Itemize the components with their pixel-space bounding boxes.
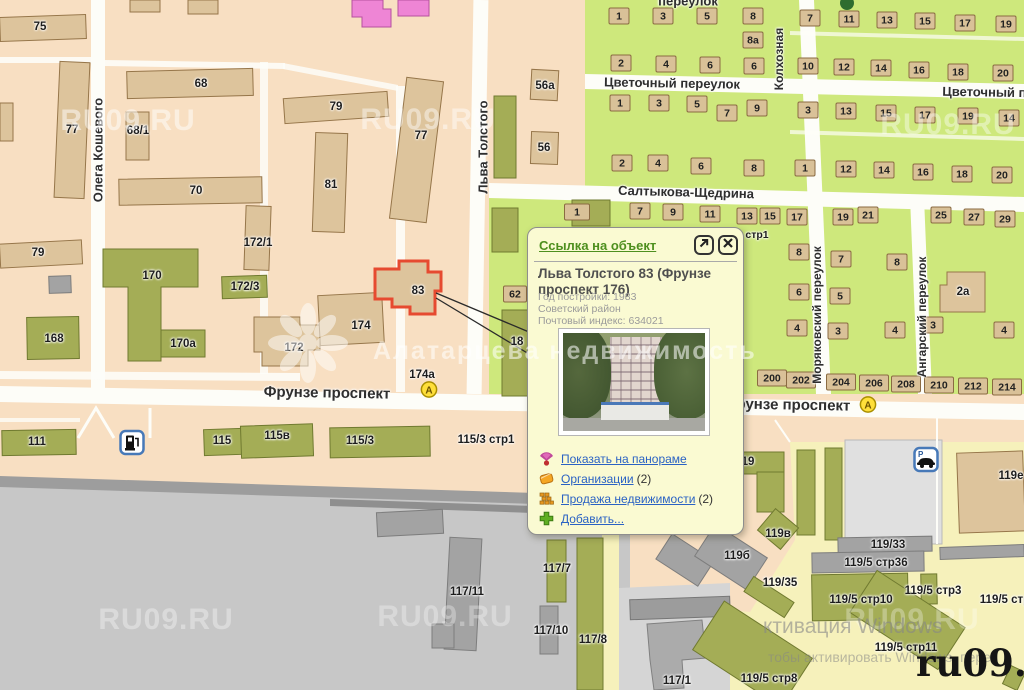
building-square-6[interactable]: 6 [789, 284, 810, 301]
popup-action-link[interactable]: Добавить... [561, 512, 624, 526]
street-label: Цветочный переулок [604, 74, 740, 91]
building-label: 115в [264, 430, 290, 442]
map-page: { "popup": { "link_label": "Ссылка на об… [0, 0, 1024, 690]
building-square-204[interactable]: 204 [826, 374, 856, 391]
building-square-1[interactable]: 1 [564, 204, 590, 221]
street-label: переулок [658, 0, 718, 9]
building-square-4[interactable]: 4 [656, 56, 677, 73]
fuel-station-icon[interactable] [119, 430, 145, 461]
building-square-7[interactable]: 7 [717, 105, 738, 122]
street-label: Салтыкова-Щедрина [618, 183, 754, 202]
bus-stop-icon[interactable]: А [420, 381, 438, 404]
building-square-29[interactable]: 29 [995, 211, 1016, 228]
building-square-18[interactable]: 18 [952, 166, 973, 183]
site-watermark: RU09.RU [377, 600, 512, 634]
building-label: 115/3 стр1 [458, 434, 515, 446]
site-watermark: RU09.RU [360, 103, 495, 137]
building-label: 115/3 [346, 435, 374, 447]
object-link[interactable]: Ссылка на объект [539, 238, 656, 253]
building-square-18[interactable]: 18 [948, 64, 969, 81]
building-square-17[interactable]: 17 [787, 209, 808, 226]
popup-actions: Показать на панорамеОрганизации(2)Продаж… [538, 449, 713, 529]
building-square-8[interactable]: 8 [887, 254, 908, 271]
building-label: 56 [538, 142, 551, 154]
building-square-7[interactable]: 7 [800, 10, 821, 27]
street-label: Моряковский переулок [810, 246, 824, 384]
popup-action-organizations[interactable]: Организации(2) [538, 469, 713, 488]
popup-action-add[interactable]: Добавить... [538, 509, 713, 528]
building-label: 172/3 [231, 281, 260, 293]
object-build-year: Год постройки: 1983 [538, 291, 636, 303]
photo-kiosk [601, 405, 669, 421]
building-label: 79 [32, 247, 45, 259]
svg-text:P: P [918, 450, 924, 459]
building-square-7[interactable]: 7 [831, 251, 852, 268]
building-square-21[interactable]: 21 [858, 207, 879, 224]
building-square-13[interactable]: 13 [877, 12, 898, 29]
popup-action-count: (2) [698, 492, 713, 506]
building-square-19[interactable]: 19 [996, 16, 1017, 33]
building-square-4[interactable]: 4 [787, 320, 808, 337]
building-square-8[interactable]: 8 [743, 8, 764, 25]
building-square-9[interactable]: 9 [663, 204, 684, 221]
building-square-27[interactable]: 27 [964, 209, 985, 226]
building-label: 174 [351, 320, 370, 332]
building-label: стр1 [745, 229, 768, 241]
popup-goto-button[interactable] [694, 235, 714, 255]
building-square-15[interactable]: 15 [760, 208, 781, 225]
building-square-9[interactable]: 9 [747, 100, 768, 117]
building-square-10[interactable]: 10 [798, 58, 819, 75]
popup-action-count: (2) [637, 472, 652, 486]
building-label: 119б [724, 550, 750, 562]
building-square-208[interactable]: 208 [891, 376, 921, 393]
building-square-2[interactable]: 2 [612, 155, 633, 172]
building-square-1[interactable]: 1 [610, 95, 631, 112]
site-watermark: RU09.RU [60, 104, 195, 138]
building-square-15[interactable]: 15 [915, 13, 936, 30]
bus-stop-icon[interactable]: А [859, 396, 877, 419]
building-square-210[interactable]: 210 [924, 377, 954, 394]
building-square-14[interactable]: 14 [871, 60, 892, 77]
building-square-20[interactable]: 20 [992, 167, 1013, 184]
building-square-206[interactable]: 206 [859, 375, 889, 392]
building-label: 115 [213, 435, 232, 447]
building-square-13[interactable]: 13 [737, 208, 758, 225]
building-label: 119/33 [871, 539, 906, 551]
site-watermark: RU09.RU [880, 108, 1015, 142]
agency-watermark: Алатарцева недвижимость [373, 337, 757, 366]
building-label: 119/35 [763, 577, 798, 589]
building-square-5[interactable]: 5 [830, 288, 851, 305]
agency-flower-watermark [268, 303, 348, 388]
realty-icon [538, 490, 556, 507]
building-label: 117/1 [663, 675, 691, 687]
building-square-3[interactable]: 3 [798, 102, 819, 119]
site-watermark: RU09.RU [98, 603, 233, 637]
building-label: 170а [170, 338, 196, 350]
building-square-19[interactable]: 19 [833, 209, 854, 226]
building-label: 119е [999, 470, 1024, 482]
object-postcode: Почтовый индекс: 634021 [538, 315, 664, 327]
building-label: 117/7 [543, 563, 571, 575]
building-square-1[interactable]: 1 [609, 8, 630, 25]
building-square-25[interactable]: 25 [931, 207, 952, 224]
building-label: 2а [957, 286, 970, 298]
organizations-icon [538, 470, 556, 487]
building-square-8[interactable]: 8 [789, 244, 810, 261]
building-square-11[interactable]: 11 [700, 206, 721, 223]
building-label: 119/5 стр [980, 594, 1024, 606]
building-square-6[interactable]: 6 [700, 57, 721, 74]
building-square-3[interactable]: 3 [828, 323, 849, 340]
street-label: Колхозная [772, 28, 786, 90]
building-square-4[interactable]: 4 [648, 155, 669, 172]
windows-activation-line1: ктивация Windows [763, 615, 943, 639]
popup-action-link[interactable]: Организации [561, 472, 634, 486]
building-label: 75 [34, 21, 47, 33]
site-logo[interactable]: ru09.ru [916, 641, 1024, 685]
building-label: 68 [195, 78, 208, 90]
building-label: 168 [44, 333, 63, 345]
building-square-12[interactable]: 12 [836, 161, 857, 178]
popup-close-button[interactable] [718, 235, 738, 255]
building-square-1[interactable]: 1 [795, 160, 816, 177]
building-square-6[interactable]: 6 [744, 58, 765, 75]
building-label: 79 [330, 101, 343, 113]
popup-action-realty[interactable]: Продажа недвижимости(2) [538, 489, 713, 508]
building-square-6[interactable]: 6 [691, 158, 712, 175]
building-square-5[interactable]: 5 [697, 8, 718, 25]
building-label: 117/8 [579, 634, 607, 646]
building-square-16[interactable]: 16 [913, 164, 934, 181]
street-label: Ангарский переулок [915, 257, 929, 378]
building-square-16[interactable]: 16 [909, 62, 930, 79]
building-label: 119/5 стр3 [905, 585, 962, 597]
add-icon [538, 510, 556, 527]
building-square-62[interactable]: 62 [503, 286, 527, 303]
object-popup: Ссылка на объект Льва Толстого 83 (Фрунз… [527, 227, 744, 535]
building-square-200[interactable]: 200 [757, 370, 787, 387]
building-label: 117/11 [450, 586, 484, 598]
building-label: 81 [325, 179, 338, 191]
building-label: 56а [535, 80, 554, 92]
building-square-13[interactable]: 13 [836, 103, 857, 120]
building-square-4[interactable]: 4 [885, 322, 906, 339]
building-label: 83 [412, 285, 425, 297]
svg-text:А: А [425, 386, 432, 397]
building-label: 117/10 [534, 625, 569, 637]
building-square-2[interactable]: 2 [611, 55, 632, 72]
popup-action-link[interactable]: Продажа недвижимости [561, 492, 695, 506]
building-square-214[interactable]: 214 [992, 379, 1022, 396]
building-square-8[interactable]: 8 [744, 160, 765, 177]
building-square-5[interactable]: 5 [687, 96, 708, 113]
building-square-11[interactable]: 11 [839, 11, 860, 28]
building-square-12[interactable]: 12 [834, 59, 855, 76]
popup-action-link[interactable]: Показать на панораме [561, 452, 687, 466]
object-district: Советский район [538, 303, 621, 315]
building-label: 174а [409, 369, 435, 381]
building-square-8а[interactable]: 8а [743, 32, 764, 49]
building-label: 170 [142, 270, 161, 282]
svg-text:А: А [864, 401, 871, 412]
building-square-20[interactable]: 20 [993, 65, 1014, 82]
panorama-icon [538, 450, 556, 467]
building-label: 70 [190, 185, 203, 197]
arrow-ne-icon [698, 236, 710, 254]
building-label: 111 [28, 436, 46, 448]
building-square-14[interactable]: 14 [874, 162, 895, 179]
building-square-3[interactable]: 3 [653, 8, 674, 25]
building-label: 119/5 стр36 [844, 557, 907, 569]
street-label: Цветочный пе [942, 84, 1024, 101]
building-square-7[interactable]: 7 [630, 203, 651, 220]
building-label: 119в [765, 528, 791, 540]
popup-action-panorama[interactable]: Показать на панораме [538, 449, 713, 468]
building-square-212[interactable]: 212 [958, 378, 988, 395]
building-square-17[interactable]: 17 [955, 15, 976, 32]
building-square-3[interactable]: 3 [649, 95, 670, 112]
building-square-4[interactable]: 4 [994, 322, 1015, 339]
close-icon [722, 236, 734, 254]
parking-icon[interactable]: P [913, 447, 939, 478]
building-label: 119/5 стр8 [741, 673, 798, 685]
building-label: 172/1 [244, 237, 273, 249]
popup-divider [534, 261, 737, 262]
